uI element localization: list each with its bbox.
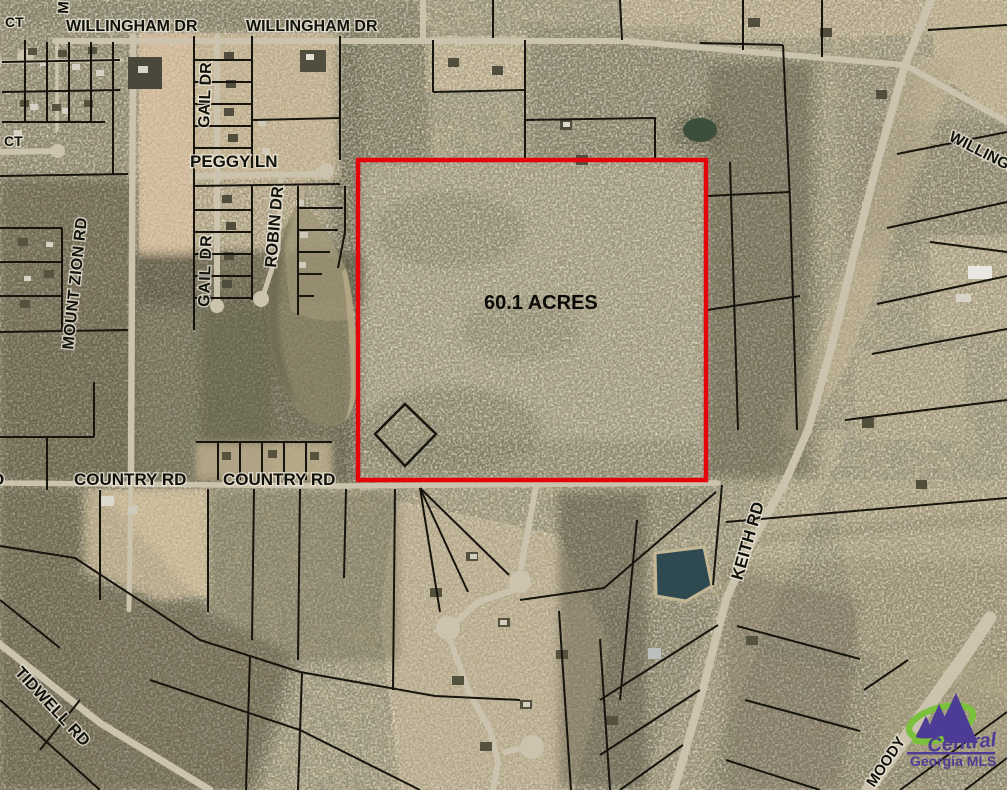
svg-text:WILLINGHAM DR: WILLINGHAM DR — [66, 18, 198, 35]
svg-text:COUNTRY RD: COUNTRY RD — [223, 470, 335, 489]
svg-text:CT: CT — [5, 14, 24, 30]
svg-text:WILLINGHAM DR: WILLINGHAM DR — [246, 18, 378, 35]
svg-text:D: D — [0, 470, 4, 489]
svg-text:GAIL DR: GAIL DR — [196, 234, 216, 307]
svg-text:CT: CT — [4, 133, 23, 149]
svg-text:GAIL DR: GAIL DR — [196, 62, 215, 128]
svg-text:PEGGY LN: PEGGY LN — [190, 152, 278, 171]
svg-text:M: M — [55, 1, 73, 14]
svg-text:COUNTRY RD: COUNTRY RD — [74, 470, 186, 489]
svg-text:Georgia MLS: Georgia MLS — [910, 753, 996, 769]
svg-text:60.1 ACRES: 60.1 ACRES — [484, 292, 598, 314]
